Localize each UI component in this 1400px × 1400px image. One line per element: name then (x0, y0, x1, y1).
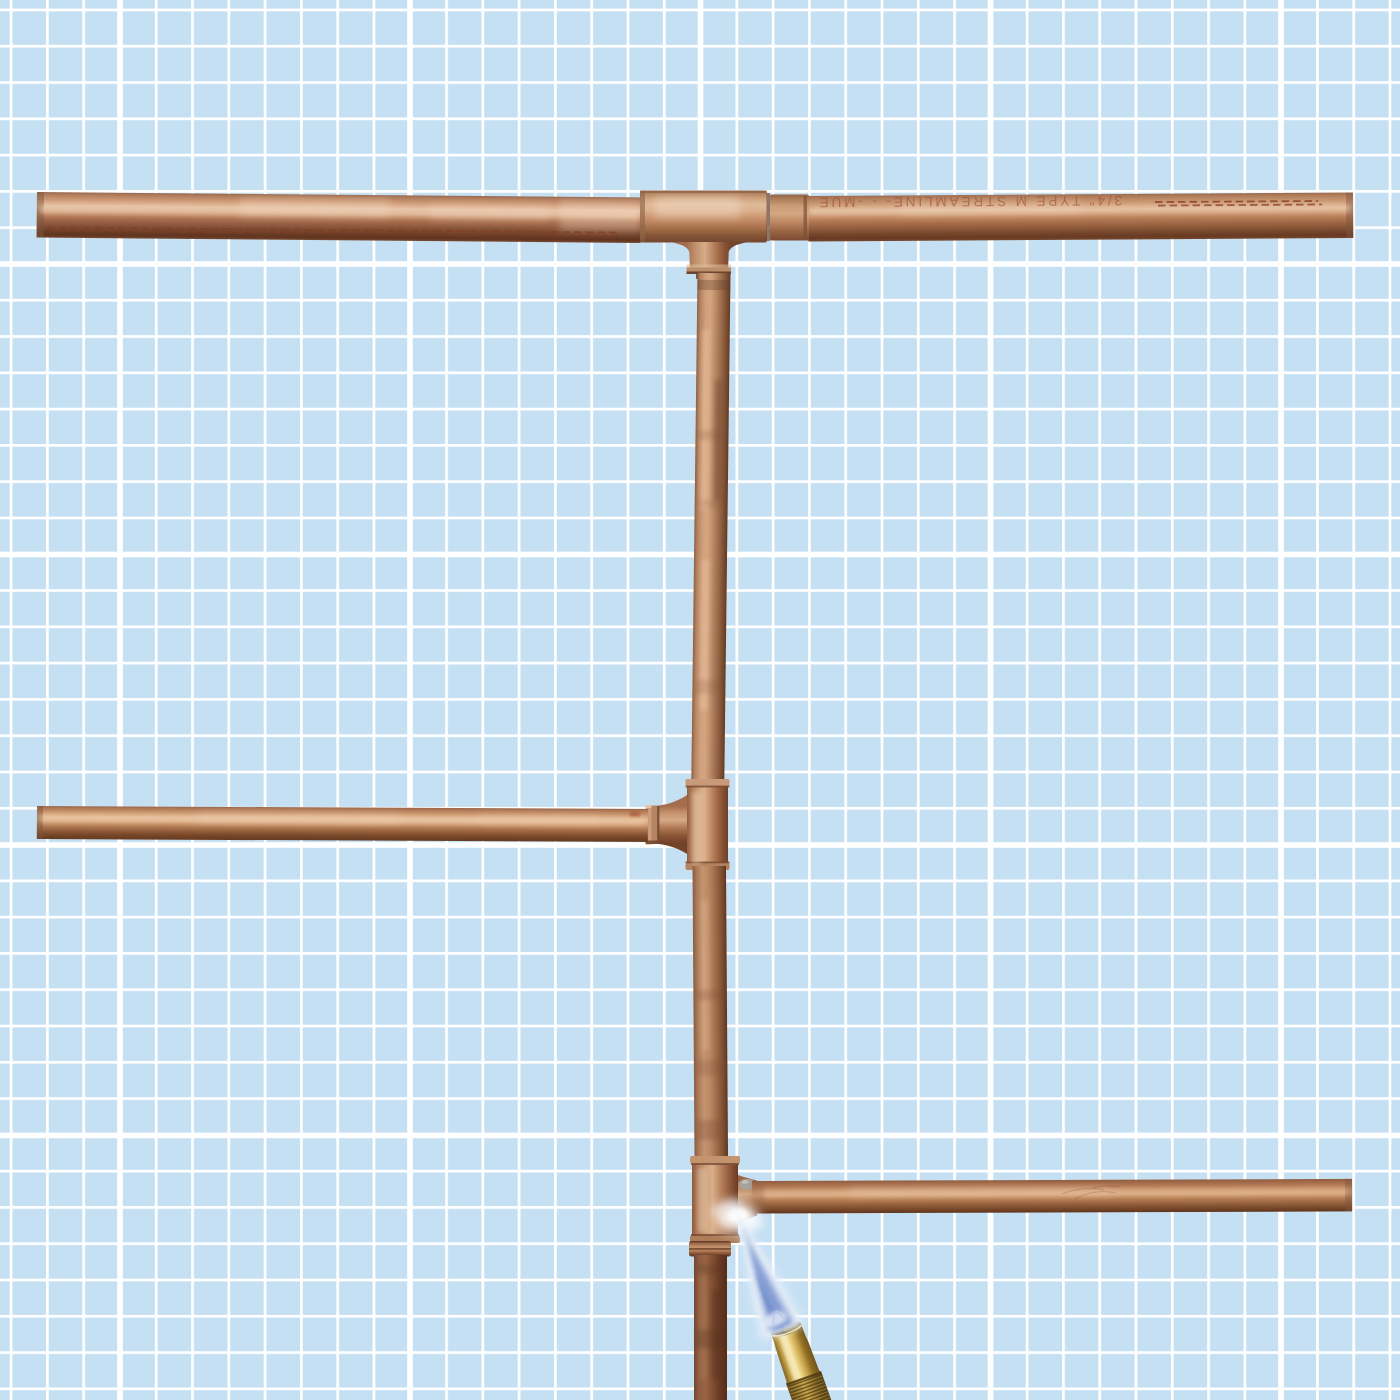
svg-text:3/4" TYPE M STREAMLINE- - -M: 3/4" TYPE M STREAMLINE- - -MUE (817, 193, 1122, 210)
